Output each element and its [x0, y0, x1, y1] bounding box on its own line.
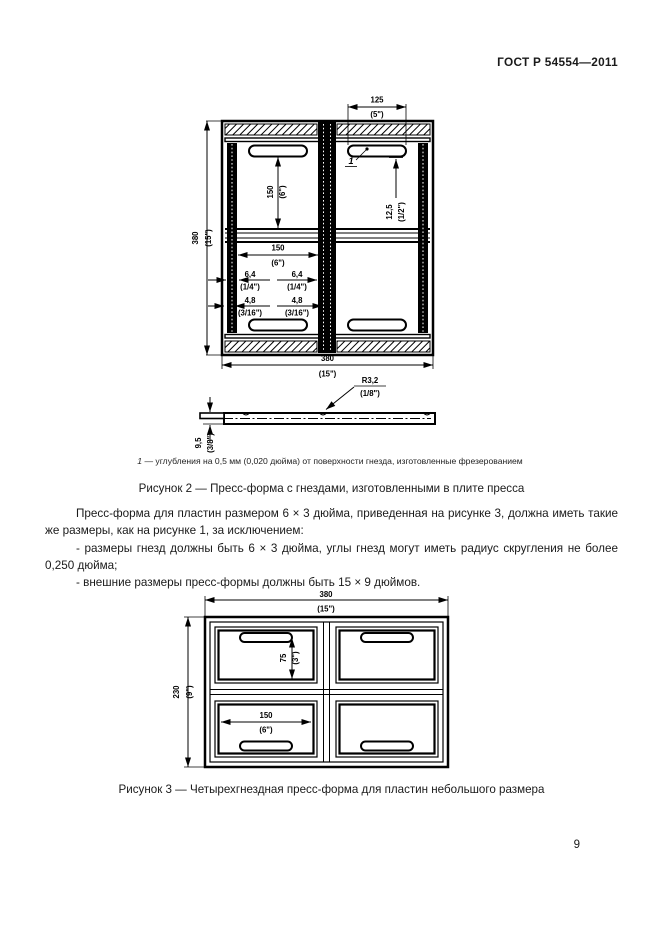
- figure2-drawing: 125 (5") 380 (15") 150 (6") 12,5 (1/2") …: [180, 88, 470, 468]
- svg-text:(3/16"): (3/16"): [238, 309, 262, 318]
- list-item: - размеры гнезд должны быть 6 × 3 дюйма,…: [45, 540, 618, 575]
- dim-recess-radius: R3,2 (1/8"): [326, 376, 386, 410]
- hatch-strip: [337, 341, 430, 352]
- recess-slot: [361, 742, 413, 751]
- recess-slot: [348, 320, 406, 331]
- hatch-strip: [225, 124, 317, 135]
- recess-slot: [249, 146, 307, 157]
- mold-plate-section: [200, 412, 435, 424]
- svg-text:(6"): (6"): [278, 185, 287, 199]
- document-page: { "page": { "header": "ГОСТ Р 54554—2011…: [0, 0, 661, 936]
- svg-text:(5"): (5"): [370, 110, 384, 119]
- svg-text:1: 1: [348, 156, 353, 166]
- svg-text:380: 380: [321, 354, 335, 363]
- figure3-drawing: 380 (15") 230 (9") 75 (3") 150 (6"): [170, 588, 470, 773]
- paragraph: Пресс-форма для пластин размером 6 × 3 д…: [45, 505, 618, 540]
- svg-text:150: 150: [266, 185, 275, 199]
- svg-text:(1/4"): (1/4"): [240, 283, 260, 292]
- svg-text:(1/8"): (1/8"): [360, 389, 380, 398]
- svg-text:(15"): (15"): [204, 229, 213, 247]
- recess-slot: [348, 146, 406, 157]
- svg-text:(3"): (3"): [291, 651, 300, 665]
- figure2-caption: Рисунок 2 — Пресс-форма с гнездами, изго…: [45, 482, 618, 495]
- standard-number-header: ГОСТ Р 54554—2011: [45, 55, 618, 69]
- page-number: 9: [45, 839, 580, 851]
- recess-slot: [249, 320, 307, 331]
- svg-text:(3/16"): (3/16"): [285, 309, 309, 318]
- svg-text:(6"): (6"): [259, 726, 273, 735]
- svg-text:(15"): (15"): [317, 605, 335, 614]
- svg-text:(3/8"): (3/8"): [206, 433, 215, 453]
- recess-slot: [240, 633, 292, 642]
- recess-slot: [361, 633, 413, 642]
- dim-plate-thickness: 9,5 (3/8"): [194, 397, 223, 453]
- figure2-svg: 125 (5") 380 (15") 150 (6") 12,5 (1/2") …: [180, 88, 470, 468]
- dim-plate-height: 230 (9"): [172, 617, 206, 767]
- svg-text:6,4: 6,4: [292, 270, 304, 279]
- svg-text:(6"): (6"): [271, 259, 285, 268]
- figure3-caption: Рисунок 3 — Четырехгнездная пресс-форма …: [45, 783, 618, 796]
- dim-plate-width: 380 (15"): [222, 354, 433, 379]
- dim-plate-height: 380 (15"): [191, 121, 223, 355]
- svg-text:(15"): (15"): [319, 370, 337, 379]
- svg-text:380: 380: [319, 590, 333, 599]
- svg-text:R3,2: R3,2: [362, 376, 379, 385]
- svg-text:125: 125: [370, 96, 384, 105]
- svg-text:380: 380: [191, 231, 200, 245]
- svg-text:6,4: 6,4: [245, 270, 257, 279]
- dim-plate-width: 380 (15"): [205, 590, 448, 616]
- mold-plate-plan: [222, 121, 433, 355]
- svg-text:(1/2"): (1/2"): [397, 202, 406, 222]
- figure3-svg: 380 (15") 230 (9") 75 (3") 150 (6"): [170, 588, 470, 773]
- svg-text:75: 75: [279, 653, 288, 662]
- recess-slot: [240, 742, 292, 751]
- svg-text:4,8: 4,8: [245, 296, 257, 305]
- center-rib: [318, 122, 336, 353]
- svg-text:9,5: 9,5: [194, 437, 203, 449]
- svg-text:4,8: 4,8: [292, 296, 304, 305]
- svg-text:150: 150: [259, 711, 273, 720]
- svg-text:230: 230: [172, 685, 181, 699]
- svg-text:(1/4"): (1/4"): [287, 283, 307, 292]
- svg-text:12,5: 12,5: [385, 204, 394, 220]
- svg-text:(9"): (9"): [185, 685, 194, 699]
- hatch-strip: [225, 341, 317, 352]
- footnote-ref: 1: [137, 456, 142, 466]
- body-text-1: Пресс-форма для пластин размером 6 × 3 д…: [45, 505, 618, 591]
- hatch-strip: [337, 124, 430, 135]
- mold-plate-plan: [205, 617, 448, 767]
- footnote-text: — углубления на 0,5 мм (0,020 дюйма) от …: [144, 456, 522, 466]
- svg-text:150: 150: [271, 244, 285, 253]
- figure2-footnote: 1 — углубления на 0,5 мм (0,020 дюйма) о…: [30, 456, 630, 466]
